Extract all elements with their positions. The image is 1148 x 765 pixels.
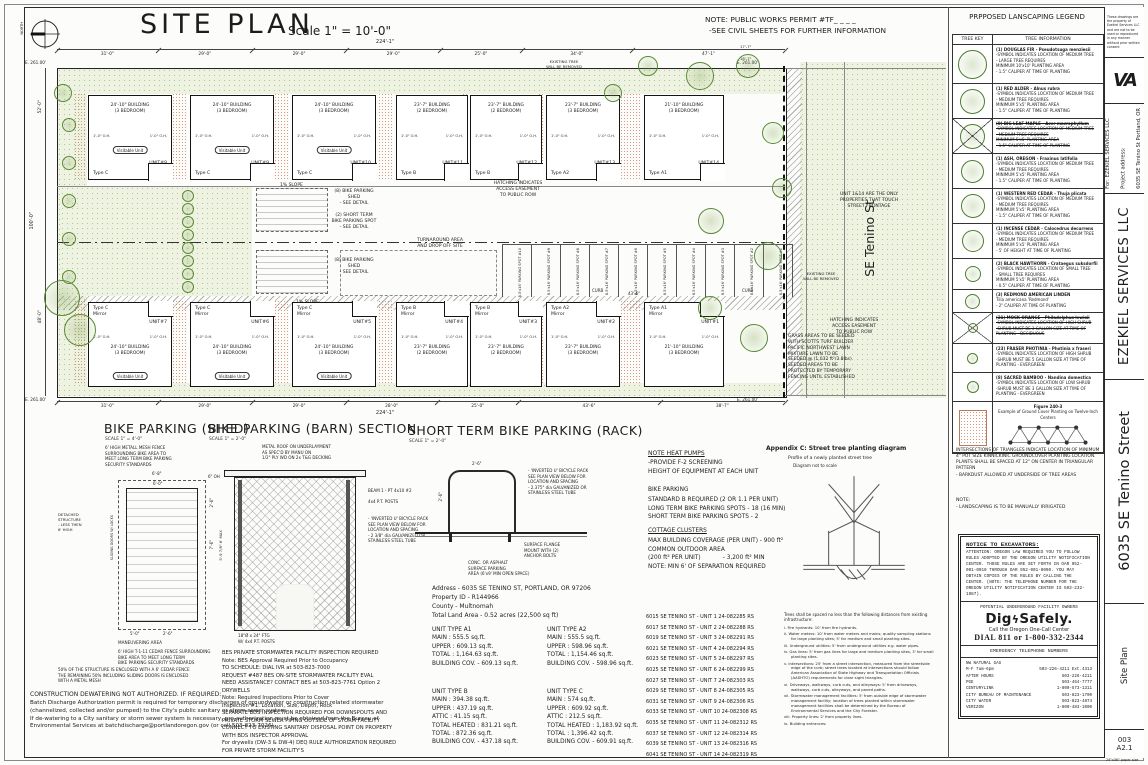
bike-parking-note: STANDARD B REQUIRED (2 OR 1.1 PER UNIT) …: [648, 496, 785, 522]
type-name: Type B: [401, 306, 416, 312]
sheet-name: Site Plan: [1120, 647, 1130, 684]
overhang-label: 1'-0" O.H.: [598, 134, 615, 138]
parking-stall: 8.5'x16' PARKING SPOT #9: [531, 245, 560, 297]
building-bedrooms-label: (3 BEDROOM): [293, 351, 375, 357]
parking-spot-label: 8.5'x16' PARKING SPOT #3: [722, 248, 726, 295]
overhang-label: 1'-0" O.H.: [520, 335, 537, 339]
rack-surface-note: CONC. OR ASPHALT SURFACE PARKING AREA (6…: [468, 560, 564, 577]
building-size-label: 23'-7" BUILDING(2 BEDROOM): [397, 345, 467, 356]
building-bedrooms-label: (2 BEDROOM): [471, 109, 541, 115]
dim-label: 25'-0": [471, 404, 484, 409]
unit-type-label: Type CMirror: [195, 306, 210, 317]
building-bedrooms-label: (3 BEDROOM): [89, 351, 171, 357]
legend-info-line: - 1.5" CALIPER AT TIME OF PLANTING: [996, 178, 1100, 183]
unit-type-label: Type C: [195, 171, 210, 177]
tree-symbol: [958, 50, 987, 79]
dim-tick: [344, 400, 350, 406]
legend-info-line: - 1.5" CALIPER AT TIME OF PLANTING: [996, 213, 1100, 218]
unit-type-label: Type C: [297, 171, 312, 177]
unit-type-line: BUILDING COV. - 609.91 sq.ft.: [547, 738, 638, 746]
mirror-label: Mirror: [551, 312, 569, 318]
rack-u-shape: [448, 470, 516, 534]
dim-label: 2'-6": [438, 492, 443, 501]
project-street: 6035 SE Tenino Street: [1117, 411, 1133, 571]
shrub-symbol: [182, 255, 194, 267]
legend-row: (1) WESTERN RED CEDAR - Thuja plicata-SY…: [953, 189, 1103, 224]
legend-info-line: -SYMBOL INDICATES LOCATION OF MEDIUM TRE…: [996, 161, 1100, 166]
easement-note: HATCHING INDICATES ACCESS EASEMENT TO PU…: [476, 181, 560, 199]
dim-label: 43'-6": [583, 404, 596, 409]
project-address-label: Project address:: [1121, 108, 1129, 189]
barn-rack-note: - 'INVERTED U' BICYCLE RACK SEE PLAN VIE…: [368, 516, 444, 544]
legend-info-line: - 1.5" CALIPER AT TIME OF PLANTING: [996, 143, 1100, 148]
unit-address-list: 6015 SE TENINO ST - UNIT 1 24-082285 RS6…: [646, 612, 757, 760]
unit-type-line: BUILDING COV. - 437.18 sq.ft.: [432, 738, 518, 746]
tree-symbol: [762, 122, 784, 144]
overhang-label: 1'-0" O.H.: [649, 134, 666, 138]
shed-detail-scale: SCALE 1" = 4'-0": [105, 437, 142, 442]
barn-height-dim: 5'-9 7/8" 6' MAX: [218, 530, 223, 561]
building-notch: [250, 301, 275, 317]
curb-label: CURB: [592, 288, 603, 293]
left-dimension-line: [45, 68, 46, 396]
visitable-unit-badge: Visitable Unit: [113, 372, 148, 380]
building-notch: [444, 301, 469, 317]
street-frontage-boundary: [783, 66, 785, 398]
overhang-label: 1'-0" O.H.: [401, 134, 418, 138]
unit-type-line: MAIN : 394.38 sq.ft.: [432, 696, 518, 704]
dim-label: 29'-0": [198, 52, 211, 57]
legend-symbol-cell: [953, 45, 993, 83]
barn-detail-title: BIKE PARKING (BARN) SECTION: [208, 421, 417, 436]
client-line: For: EZEKIEL SERVICES LLC: [1105, 108, 1113, 189]
tree-symbol: [54, 84, 72, 102]
emergency-numbers-title: EMERGENCY TELEPHONE NUMBERS: [966, 649, 1092, 654]
rack-type-note: - 'INVERTED U' BICYCLE RACK SEE PLAN VIE…: [528, 468, 602, 496]
dim-tick: [783, 48, 789, 54]
legend-col-tree-info: TREE INFORMATION: [993, 35, 1103, 44]
building-size-label: 23'-7" BUILDING(2 BEDROOM): [397, 103, 467, 114]
appendix-sub1: Profile of a newly planted street tree: [788, 456, 872, 461]
building-bedrooms-label: (3 BEDROOM): [191, 109, 273, 115]
building-notch: [148, 301, 173, 317]
strikeout-x-mark: [953, 313, 992, 343]
dim-tick: [344, 48, 350, 54]
unit-type-block-a2: UNIT TYPE A2MAIN : 555.5 sq.ft.UPPER : 5…: [547, 626, 633, 668]
legend-info-line: -SYMBOL INDICATES LOCATION OF MEDIUM TRE…: [996, 196, 1100, 201]
unit-type-label: Type A2: [551, 171, 569, 177]
left-dim-upper: 52'-0": [38, 100, 43, 114]
dim-label: 34'-0": [570, 52, 583, 57]
barn-post: [346, 480, 350, 626]
type-name: Type C: [93, 171, 108, 177]
easement-note: HATCHING INDICATES ACCESS EASEMENT TO PU…: [798, 318, 910, 336]
mirror-label: Mirror: [649, 312, 667, 318]
legend-info-line: -SYMBOL INDICATES LOCATION OF MEDIUM TRE…: [996, 91, 1100, 96]
overhang-label: 1'-0" O.H.: [520, 134, 537, 138]
maneuvering-area-label: MANEUVERING AREA: [118, 640, 162, 646]
visitable-unit-badge: Visitable Unit: [215, 372, 250, 380]
appendix-title: Appendix C: Street tree planting diagram: [766, 445, 906, 452]
slope-note: 1% SLOPE: [296, 300, 319, 306]
dim-label: 25'-0": [474, 52, 487, 57]
building-size-label: 24'-10" BUILDING(3 BEDROOM): [293, 103, 375, 114]
tree-symbol: [698, 208, 724, 234]
dim-label: 47'-1": [702, 52, 715, 57]
legend-row: (8) SACRED BAMBOO - Nandina domestica-SY…: [953, 373, 1103, 402]
overhang-label: 1'-0" O.H.: [195, 335, 212, 339]
tree-spacing-item: ii. Water meters: 10' from water meters …: [784, 632, 934, 642]
unit-address-line: 6021 SE TENINO ST - UNIT 4 24-082294 RS: [646, 644, 757, 655]
legend-header: TREE KEY TREE INFORMATION: [953, 35, 1103, 45]
barn-roof: [224, 470, 366, 477]
unit-number-label: UNIT#10: [350, 161, 371, 166]
sheet-name-cell: Site Plan: [1105, 603, 1144, 730]
legend-row: (1) INCENSE CEDAR - Calocedrus decurrens…: [953, 224, 1103, 259]
unit-address-line: 6027 SE TENINO ST - UNIT 7 24-082303 RS: [646, 676, 757, 687]
legend-info-cell: (2) BLACK HAWTHORN - Crataegus suksdorfi…: [993, 259, 1103, 290]
legend-info-cell: (1) RED ALDER - Alnus rubra-SYMBOL INDIC…: [993, 84, 1103, 118]
rack-leg: [449, 532, 452, 542]
rack-ground-line: [415, 532, 587, 534]
dim-label: 2'-6": [472, 461, 481, 466]
dim-label: 7'-6": [209, 540, 214, 549]
unit-type-line: ATTIC : 41.15 sq.ft.: [432, 713, 518, 721]
unit-type-label: Type B: [475, 171, 490, 177]
building-bedrooms-label: (3 BEDROOM): [645, 351, 723, 357]
building-bedrooms-label: (3 BEDROOM): [89, 109, 171, 115]
unit-number-label: UNIT#2: [597, 320, 615, 325]
tree-spacing-item: ix. Building entrances:: [784, 722, 934, 727]
shrub-symbol: [182, 242, 194, 254]
tree-spacing-item: i. Fire hydrants: 10' from fire hydrants…: [784, 626, 934, 631]
legend-info-cell: (1) INCENSE CEDAR - Calocedrus decurrens…: [993, 224, 1103, 258]
dim-label: 2'-6": [209, 498, 214, 507]
unit-type-label: Type BMirror: [475, 306, 490, 317]
tree-spacing-item: viii. Property lines: 2' from property l…: [784, 715, 934, 720]
unit-number-label: UNIT#12: [516, 161, 537, 166]
street-tree-diagram: [798, 468, 910, 610]
tree-symbol: [736, 54, 760, 78]
tree-symbol: [960, 89, 985, 114]
unit-number-label: UNIT#6: [251, 320, 269, 325]
legend-row: (0) BIG LEAF MAPLE - Acer macrophyllum-S…: [953, 119, 1103, 154]
shrub-symbol: [182, 229, 194, 241]
left-dim-total: 100'-0": [30, 212, 35, 229]
parking-spot-label: 8.5'x16' PARKING SPOT #9: [548, 248, 552, 295]
building-size-label: 23'-7" BUILDING(3 BEDROOM): [547, 345, 619, 356]
building-bedrooms-label: (2 BEDROOM): [471, 351, 541, 357]
dim-label: 29'-0": [387, 52, 400, 57]
legend-title: PRPPOSED LANSCAPING LEGEND: [950, 13, 1104, 21]
unit-address-line: 6041 SE TENINO ST - UNIT 14 24-082319 RS: [646, 750, 757, 761]
building-size-label: 24'-10" BUILDING(3 BEDROOM): [293, 345, 375, 356]
legend-info-line: -SYMBOL INDICATES LOCATION OF HIGH SHRUB: [996, 351, 1100, 356]
unit-type-block-c: UNIT TYPE CMAIN : 574 sq.ft.UPPER : 609.…: [547, 688, 638, 747]
dim-tick: [155, 48, 161, 54]
tree-symbol: [967, 353, 978, 364]
unit-number-label: UNIT#5: [353, 320, 371, 325]
legend-symbol-cell: [953, 259, 993, 290]
shrub-symbol: [182, 216, 194, 228]
paper-size-note: 24"x36" paper size: [1106, 758, 1138, 762]
facility-owners-label: POTENTIAL UNDERGROUND FACILITY OWNERS: [966, 605, 1092, 610]
dim-tick: [55, 400, 61, 406]
overhang-label: 1'-0" O.H.: [252, 134, 269, 138]
unit-address-line: 6035 SE TENINO ST - UNIT 11 24-082312 RS: [646, 718, 757, 729]
emergency-number-rows: NW NATURAL GAS M-F 7am-6pm503-226-4211 E…: [966, 661, 1092, 711]
elevation-mark: E. 261.00': [25, 397, 46, 402]
legend-info-line: - 1.5" CALIPER AT TIME OF PLANTING: [996, 108, 1100, 113]
unit-number-label: UNIT#9: [251, 161, 269, 166]
dim-tick: [155, 400, 161, 406]
unit-address-line: 6019 SE TENINO ST - UNIT 3 24-082291 RS: [646, 633, 757, 644]
visitable-unit-badge: Visitable Unit: [317, 372, 352, 380]
groundcover-swatch: [959, 410, 987, 446]
shed-enclosure-note: 50% OF THE STRUCTURE IS ENCLOSED WITH A …: [58, 667, 190, 684]
unit-type-line: MAIN : 555.5 sq.ft.: [432, 634, 518, 642]
legend-info-line: PLANTING - DECIDUOUS: [996, 331, 1100, 336]
property-county: County - Multnomah: [432, 602, 493, 611]
dial-numbers: DIAL 811 or 1-800-332-2344: [966, 633, 1092, 642]
building-bedrooms-label: (2 BEDROOM): [397, 351, 467, 357]
cottage-clusters-title: COTTAGE CLUSTERS: [648, 528, 707, 534]
legend-info-cell: Figure 240-3Example of Ground Cover Plan…: [993, 402, 1103, 454]
tree-symbol: [961, 160, 984, 183]
legend-column-divider: [948, 7, 949, 758]
property-address: Address - 6035 SE TENINO ST, PORTLAND, O…: [432, 584, 591, 593]
parking-spot-label: 8.5'x16' PARKING SPOT #8: [577, 248, 581, 295]
shrub-symbol: [182, 190, 194, 202]
legend-symbol-cell: [953, 290, 993, 312]
emergency-number-row: VERIZON1-800-483-1000: [966, 705, 1092, 711]
shrub-symbol: [182, 268, 194, 280]
building-size-label: 23'-7" BUILDING(2 BEDROOM): [471, 345, 541, 356]
shed-plan-inner: [126, 488, 198, 622]
overhang-label: 1'-0" O.H.: [551, 335, 568, 339]
row-extension-line: [785, 68, 946, 69]
bes-inspection-notes: BES PRIVATE STORMWATER FACILITY INSPECTI…: [222, 650, 408, 755]
project-address: 6035 SE Tenino St Portland, OR: [1136, 108, 1144, 189]
unit-type-label: Type C: [93, 171, 108, 177]
dim-tick: [516, 400, 522, 406]
barn-bike-outline: [276, 584, 314, 630]
short-term-parking-note: (2) SHORT TERM BIKE PARKING SPOT - SEE D…: [318, 213, 390, 231]
unit-type-line: BUILDING COV. - 609.13 sq.ft.: [432, 660, 518, 668]
unit-type-line: UPPER : 598.96 sq.ft.: [547, 643, 633, 651]
unit-number-label: UNIT#3: [519, 320, 537, 325]
building-bedrooms-label: (3 BEDROOM): [547, 351, 619, 357]
shrub-symbol: [62, 118, 76, 132]
tree-symbol: [44, 280, 80, 316]
legend-note-title: NOTE:: [956, 498, 970, 503]
building-bedrooms-label: (3 BEDROOM): [191, 351, 273, 357]
overhang-label: 1'-0" O.H.: [702, 335, 719, 339]
figure-subcaption: Example of Ground Cover Planting on Twel…: [996, 409, 1100, 420]
mirror-label: Mirror: [297, 312, 312, 318]
parking-spot-label: 8.5'x16' PARKING SPOT #4: [693, 248, 697, 295]
shrub-symbol: [182, 203, 194, 215]
tree-symbol: [772, 178, 792, 198]
dim-tick: [435, 400, 441, 406]
tree-spacing-item: v. Intersections: 25' from a street inte…: [784, 662, 934, 682]
unit-type-line: BUILDING COV. - 598.96 sq.ft.: [547, 660, 633, 668]
unit-number-label: UNIT#14: [698, 161, 719, 166]
legend-info-cell: (1) WESTERN RED CEDAR - Thuja plicata-SY…: [993, 189, 1103, 223]
unit-address-line: 6017 SE TENINO ST - UNIT 2 24-082288 RS: [646, 623, 757, 634]
tree-spacing-item: vi. Driveways, walkways, curb cuts, and …: [784, 683, 934, 693]
notice-to-excavators-box: NOTICE TO EXCAVATORS: ATTENTION: OREGON …: [958, 534, 1100, 719]
unit-address-line: 6023 SE TENINO ST - UNIT 5 24-082297 RS: [646, 654, 757, 665]
overhang-label: 1'-0" O.H.: [598, 335, 615, 339]
shrub-symbol: [62, 270, 76, 284]
type-name: Type A1: [649, 171, 667, 177]
slope-note: 1% SLOPE: [280, 183, 303, 189]
dig-safely-text-2: Safely.: [1019, 611, 1072, 627]
dim-label: 31'-0": [101, 52, 114, 57]
building-unit9: 24'-10" BUILDING(3 BEDROOM)1'-0" O.H.1'-…: [190, 95, 274, 180]
type-name: Type A2: [551, 171, 569, 177]
building-bedrooms-label: (3 BEDROOM): [547, 109, 619, 115]
unit-address-line: 6033 SE TENINO ST - UNIT 10 24-082308 RS: [646, 707, 757, 718]
curb-label: CURB: [742, 288, 753, 293]
dim-tick: [55, 48, 61, 54]
tree-spacing-item: iv. Gas lines: 5' from gas lines for lar…: [784, 650, 934, 660]
unit-type-line: UPPER : 437.19 sq.ft.: [432, 705, 518, 713]
unit-number-label: UNIT#8: [149, 161, 167, 166]
building-size-label: 21'-10" BUILDING(3 BEDROOM): [645, 103, 723, 114]
type-name: Type C: [297, 171, 312, 177]
turnaround-note: TURNAROUND AREA AND DROP OFF SITE: [398, 238, 482, 250]
shrub-symbol: [62, 232, 76, 246]
bottom-dimension-line: 31'-0"29'-0"29'-0"28'-0"25'-0"43'-6"38'-…: [57, 401, 785, 413]
bike-shed-note: (8) BIKE PARKING SHED - SEE DETAIL: [318, 258, 390, 276]
legend-info-line: -SYMBOL INDICATES LOCATION OF LOW SHRUB: [996, 380, 1100, 385]
dim-label: 6'-8": [152, 471, 161, 476]
unit-address-line: 6039 SE TENINO ST - UNIT 13 24-082316 RS: [646, 739, 757, 750]
parking-stall: 8.5'x16' PARKING SPOT #4: [676, 245, 705, 297]
dim-label: 6'-0": [153, 481, 162, 486]
legend-symbol-cell: [953, 189, 993, 223]
tree-spacing-item: iii. Underground utilities: 5' from unde…: [784, 644, 934, 649]
unit-type-line: UPPER : 609.13 sq.ft.: [432, 643, 518, 651]
legend-info-line: PLANTING - EVERGREEN: [996, 391, 1100, 396]
legend-info-cell: (1) ASH, OREGON - Fraxinus latifolia-SYM…: [993, 154, 1103, 188]
dim-tick: [438, 48, 444, 54]
dim-tick: [657, 400, 663, 406]
left-dim-lower: 48'-0": [38, 310, 43, 324]
overhang-label: 1'-0" O.H.: [446, 134, 463, 138]
parking-stall: 8.5'x16' PARKING SPOT #10: [502, 245, 531, 297]
project-info-text: For: EZEKIEL SERVICES LLC Project addres…: [1105, 108, 1144, 189]
unit-number-label: UNIT#1: [701, 320, 719, 325]
visitable-unit-badge: Visitable Unit: [215, 146, 250, 154]
unit-number-label: UNIT#11: [442, 161, 463, 166]
unit-address-line: 6037 SE TENINO ST - UNIT 12 24-082314 RS: [646, 729, 757, 740]
sheet-number: 003: [1118, 736, 1131, 744]
shed-sliding-door-note: SLIDING DOORS W/ LOCKS: [110, 515, 114, 560]
barn-post: [238, 480, 242, 626]
unit-type-label: Type B: [401, 171, 416, 177]
bike-parking-note-title: BIKE PARKING: [648, 487, 688, 493]
rack-detail-scale: SCALE 1" = 2'-0": [409, 439, 446, 444]
building-unit3: 23'-7" BUILDING(2 BEDROOM)1'-0" O.H.1'-0…: [470, 302, 542, 387]
overhang-label: 1'-0" O.H.: [649, 335, 666, 339]
overall-dim-bottom: 224'-1": [376, 410, 394, 416]
building-unit11: 23'-7" BUILDING(2 BEDROOM)1'-0" O.H.1'-0…: [396, 95, 468, 180]
dim-label: 6" OH: [208, 474, 220, 479]
overhang-label: 1'-0" O.H.: [401, 335, 418, 339]
unit-type-title: UNIT TYPE A2: [547, 626, 633, 634]
shrub-symbol: [62, 194, 76, 208]
dim-label: 5'-0": [130, 631, 139, 636]
visitable-unit-badge: Visitable Unit: [113, 146, 148, 154]
dim-label: 38'-7": [716, 404, 729, 409]
legend-info-cell: (21) MOCK ORANGE - Philadelphus lewisii-…: [993, 313, 1103, 343]
excavators-title: NOTICE TO EXCAVATORS:: [966, 541, 1092, 548]
legend-row: (21) MOCK ORANGE - Philadelphus lewisii-…: [953, 313, 1103, 344]
overhang-label: 1'-0" O.H.: [252, 335, 269, 339]
unit-type-line: MAIN : 555.5 sq.ft.: [547, 634, 633, 642]
property-land-area: Total Land Area - 0.52 acres (22,500 sq …: [432, 611, 558, 620]
dim-tick: [250, 400, 256, 406]
visitable-unit-badge: Visitable Unit: [317, 146, 352, 154]
company-name-cell: EZEKIEL SERVICES LLC: [1105, 193, 1144, 380]
building-unit14: 21'-10" BUILDING(3 BEDROOM)1'-0" O.H.1'-…: [644, 95, 724, 180]
overall-dim-top: 224'-1": [376, 39, 394, 45]
building-unit7: 24'-10" BUILDING(3 BEDROOM)1'-0" O.H.1'-…: [88, 302, 172, 387]
unit-number-label: UNIT#4: [445, 320, 463, 325]
overhang-label: 1'-0" O.H.: [551, 134, 568, 138]
elevation-mark: E. 261.00': [25, 60, 46, 65]
construction-dewatering-title: CONSTRUCTION DEWATERING NOT AUTHORIZED. …: [30, 691, 221, 698]
type-name: Type C: [93, 306, 108, 312]
legend-info-line: PLANTING - EVERGREEN: [996, 362, 1100, 367]
type-name: Type C: [297, 306, 312, 312]
unit-type-label: Type CMirror: [93, 306, 108, 317]
unit-number-label: UNIT#7: [149, 320, 167, 325]
building-size-label: 24'-10" BUILDING(3 BEDROOM): [89, 103, 171, 114]
tree-symbol: [961, 194, 985, 218]
unit-type-line: TOTAL HEATED : 1,183.92 sq.ft.: [547, 722, 638, 730]
dim-label: 29'-0": [293, 52, 306, 57]
type-name: Type B: [475, 171, 490, 177]
legend-col-tree-key: TREE KEY: [953, 35, 993, 44]
barn-beam-note: BEAM 1 - PT 4x10 #2: [368, 488, 440, 494]
unit-type-label: Type BMirror: [401, 306, 416, 317]
mirror-label: Mirror: [93, 312, 108, 318]
building-notch: [518, 301, 543, 317]
building-size-label: 24'-10" BUILDING(3 BEDROOM): [89, 345, 171, 356]
legend-symbol-cell: [953, 84, 993, 118]
unit-type-line: TOTAL : 1,396.42 sq.ft.: [547, 730, 638, 738]
parking-stall: 8.5'x16' PARKING SPOT #8: [560, 245, 589, 297]
building-bedrooms-label: (3 BEDROOM): [293, 109, 375, 115]
mirror-label: Mirror: [195, 312, 210, 318]
building-size-label: 23'-7" BUILDING(3 BEDROOM): [547, 103, 619, 114]
unit-type-label: Type A1Mirror: [649, 306, 667, 317]
overhang-label: 1'-0" O.H.: [297, 134, 314, 138]
building-notch: [352, 301, 377, 317]
overhang-label: 1'-0" O.H.: [150, 134, 167, 138]
building-size-label: 21'-10" BUILDING(3 BEDROOM): [645, 345, 723, 356]
unit-address-line: 6015 SE TENINO ST - UNIT 1 24-082285 RS: [646, 612, 757, 623]
overhang-label: 1'-0" O.H.: [354, 134, 371, 138]
legend-symbol-cell: [953, 119, 993, 153]
tree-spacing-item: vii. Stormwater management facilities: 5…: [784, 694, 934, 714]
legend-symbol-cell: [953, 373, 993, 401]
utility-phone: 1-800-483-1000: [1057, 705, 1092, 711]
